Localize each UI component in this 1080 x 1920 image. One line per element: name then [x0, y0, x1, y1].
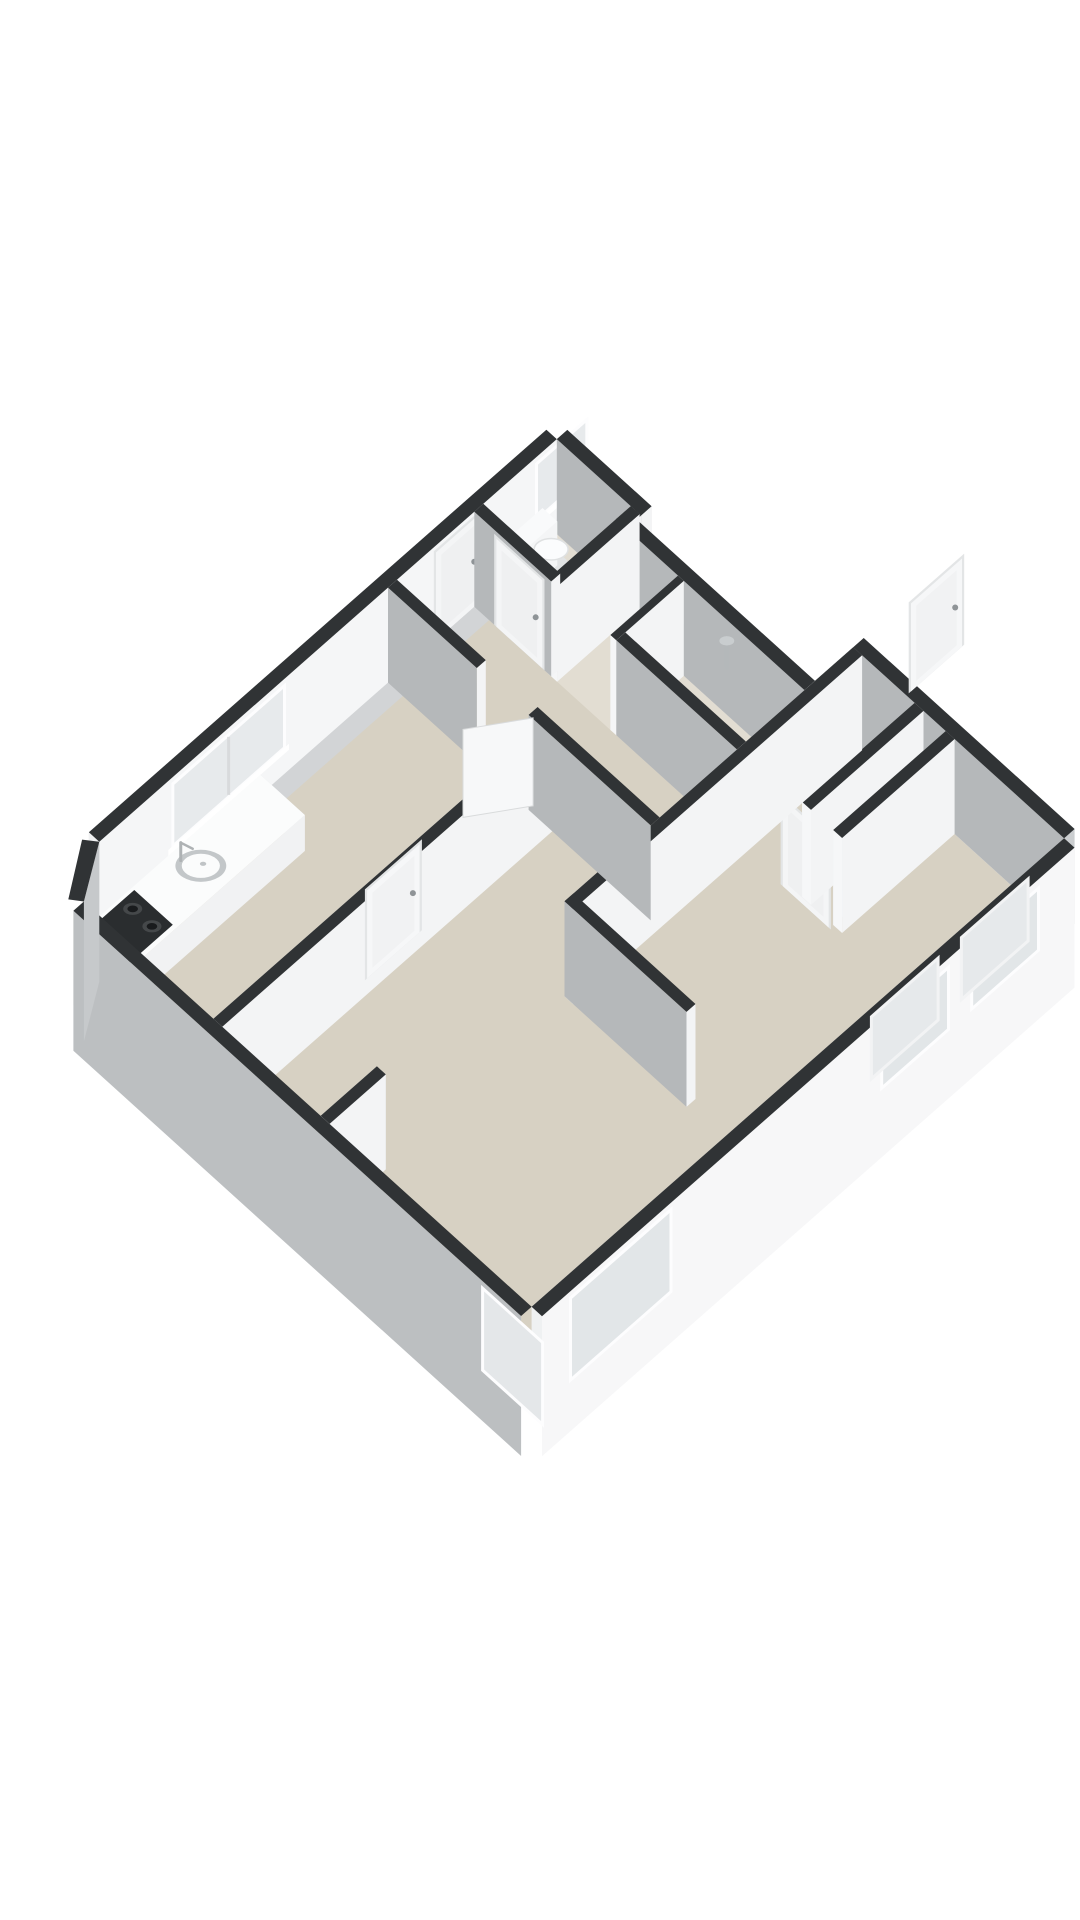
sink-drain [200, 862, 206, 866]
sink-basin [182, 854, 220, 878]
floor-plan-page [0, 0, 1080, 1920]
open-door-leaf [463, 718, 533, 818]
burner-3 [127, 906, 138, 913]
floor-plan-3d [0, 0, 1080, 1920]
shower-head [719, 636, 734, 645]
bedroom-door [909, 554, 965, 694]
burner-4 [147, 923, 158, 930]
floor-plan-canvas [0, 0, 1080, 1920]
